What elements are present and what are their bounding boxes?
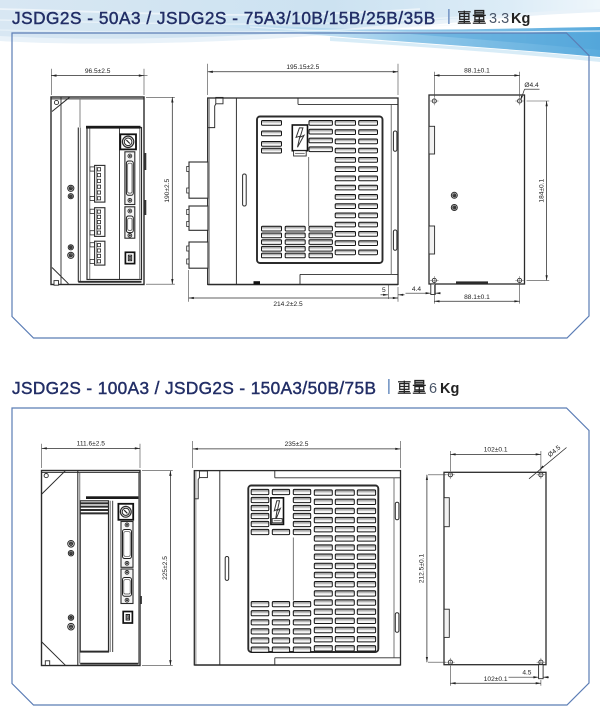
svg-text:5: 5 (382, 287, 386, 294)
svg-text:102±0.1: 102±0.1 (484, 676, 508, 683)
svg-text:4.5: 4.5 (522, 670, 531, 677)
svg-text:Kg: Kg (440, 381, 459, 397)
svg-text:214.2±2.5: 214.2±2.5 (273, 301, 303, 308)
svg-text:JSDG2S - 50A3 / JSDG2S - 75A3/: JSDG2S - 50A3 / JSDG2S - 75A3/10B/15B/25… (12, 8, 436, 28)
svg-text:235±2.5: 235±2.5 (285, 441, 309, 448)
svg-text:6: 6 (429, 381, 437, 397)
svg-text:Kg: Kg (511, 11, 530, 27)
svg-text:3.3: 3.3 (489, 11, 509, 27)
svg-text:102±0.1: 102±0.1 (484, 447, 508, 454)
svg-text:195.15±2.5: 195.15±2.5 (286, 64, 319, 71)
svg-text:184±0.1: 184±0.1 (538, 178, 545, 202)
svg-text:88.1±0.1: 88.1±0.1 (464, 68, 490, 75)
svg-text:4.4: 4.4 (412, 286, 421, 293)
svg-text:96.5±2.5: 96.5±2.5 (85, 68, 111, 75)
svg-text:88.1±0.1: 88.1±0.1 (464, 294, 490, 301)
svg-text:JSDG2S - 100A3 / JSDG2S - 150A: JSDG2S - 100A3 / JSDG2S - 150A3/50B/75B (12, 378, 376, 398)
svg-text:Ø4.4: Ø4.4 (524, 82, 539, 89)
svg-text:225±2.5: 225±2.5 (162, 556, 169, 580)
svg-text:Ø4.5: Ø4.5 (547, 444, 563, 459)
svg-text:190±2.5: 190±2.5 (164, 179, 171, 203)
svg-text:111.6±2.5: 111.6±2.5 (77, 441, 106, 448)
svg-text:212.5±0.1: 212.5±0.1 (419, 554, 426, 584)
